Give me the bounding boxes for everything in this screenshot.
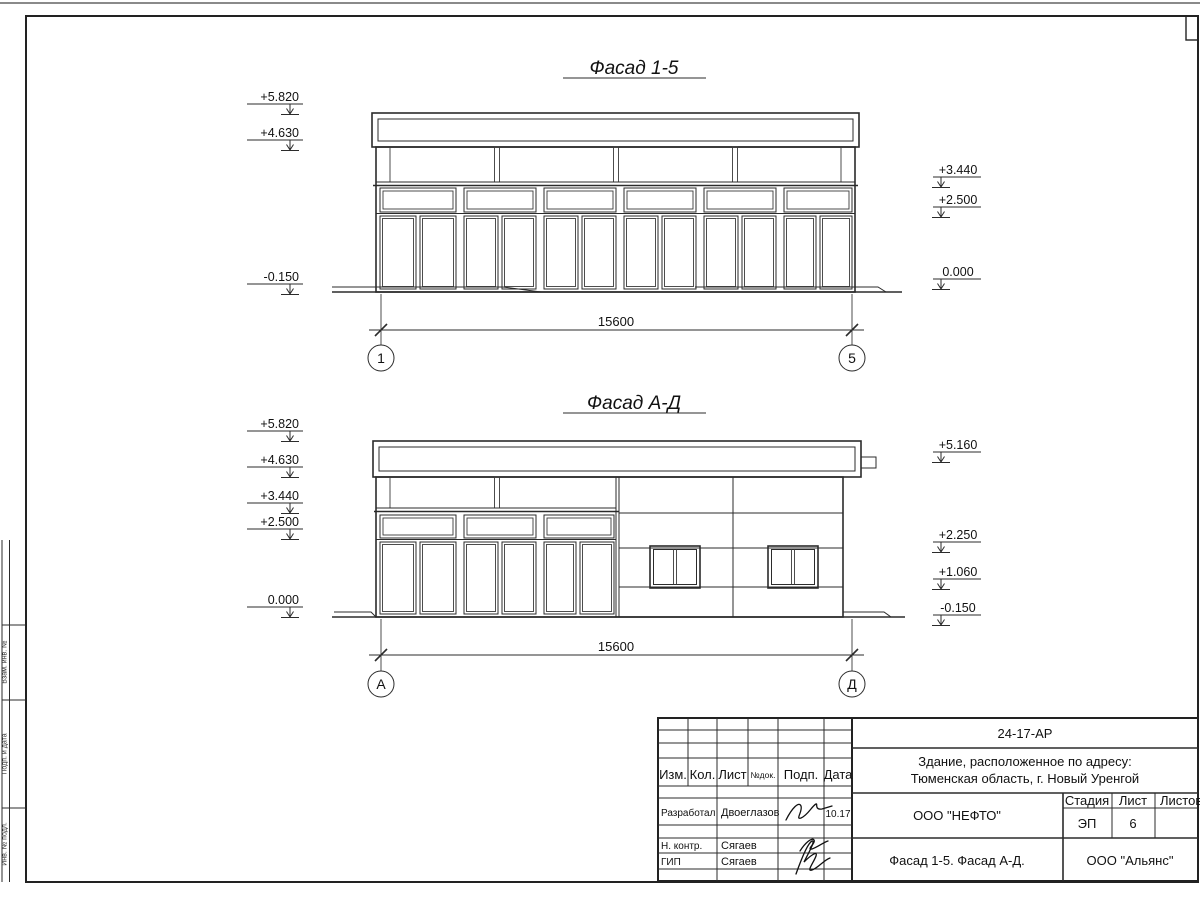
corner-doc-box [1186,16,1198,40]
elevation-mark: 0.000 [932,265,981,290]
svg-text:+2.500: +2.500 [260,515,299,529]
role-label: Разработал [661,807,716,819]
facade-1-5-drawing [332,113,902,292]
elevation-marks-right: +5.160 +2.250 +1.060 -0.150 [932,438,981,626]
transom-windows [376,188,855,214]
stage-value: ЭП [1078,816,1097,831]
sheet-number: 6 [1129,816,1136,831]
transom-windows [376,515,616,540]
dimension-value: 15600 [598,639,634,654]
elevation-mark: +2.250 [932,528,981,553]
margin-label: Подп. и дата [2,733,9,774]
client-name: ООО "НЕФТО" [913,808,1001,823]
axis-bubble-1: 1 [368,345,394,371]
elevation-mark: +3.440 [247,489,303,514]
svg-text:+3.440: +3.440 [939,163,978,177]
svg-text:+4.630: +4.630 [260,453,299,467]
design-org: ООО "Альянс" [1087,853,1174,868]
rev-header: Изм. [659,767,687,782]
rev-header: Кол. [690,767,716,782]
facade-1-5-title: Фасад 1-5 [563,58,706,79]
drawing-title: Фасад 1-5. Фасад А-Д. [889,853,1025,868]
dimension-facade-1-5: 15600 [369,294,864,345]
doc-number: 24-17-АР [998,726,1053,741]
svg-text:0.000: 0.000 [942,265,973,279]
elevation-mark: +4.630 [247,453,303,478]
role-label: ГИП [661,857,681,868]
roof-drain-tab [861,457,876,468]
rev-header: Дата [824,767,854,782]
dimension-value: 15600 [598,314,634,329]
elevation-mark: -0.150 [247,270,303,295]
role-date: 10.17 [825,809,850,820]
svg-text:Фасад 1-5: Фасад 1-5 [590,58,679,79]
elevation-mark: +5.160 [932,438,981,463]
elevation-mark: +1.060 [932,565,981,590]
elevation-marks-right: +3.440 +2.500 0.000 [932,163,981,290]
elevation-mark: +3.440 [932,163,981,188]
elevation-mark: 0.000 [247,593,303,618]
storefront-glazing [380,542,614,614]
drawing-sheet: Взам. инв. № Подп. и дата Инв. № подл. Ф… [0,0,1200,900]
margin-label: Взам. инв. № [2,640,9,683]
sheet-frame [0,3,1200,882]
svg-text:-0.150: -0.150 [940,601,975,615]
sheets-label: Листов [1160,793,1200,808]
rev-header: Подп. [784,767,819,782]
role-name: Сягаев [721,840,757,852]
sheet-label: Лист [1119,793,1147,808]
axis-bubble-a: А [368,671,394,697]
project-address-line1: Здание, расположенное по адресу: [918,754,1131,769]
svg-text:+5.820: +5.820 [260,90,299,104]
svg-text:Д: Д [847,676,857,692]
elevation-marks-left: +5.820 +4.630 +3.440 +2.500 0.000 [247,417,303,618]
margin-label: Инв. № подл. [2,822,9,866]
elevation-mark: +2.500 [247,515,303,540]
dimension-facade-a-d: 15600 [369,619,864,671]
title-block-right: 24-17-АР Здание, расположенное по адресу… [852,726,1200,881]
role-name: Сягаев [721,856,757,868]
elevation-mark: -0.150 [932,601,981,626]
window [768,546,818,588]
svg-text:+1.060: +1.060 [939,565,978,579]
role-label: Н. контр. [661,841,702,852]
project-address-line2: Тюменская область, г. Новый Уренгой [911,771,1139,786]
svg-text:+5.160: +5.160 [939,438,978,452]
facade-a-d-drawing [332,441,905,617]
elevation-mark: +5.820 [247,417,303,442]
revision-table: Изм. Кол. Лист №док. Подп. Дата Разработ… [658,718,853,881]
rev-header: Лист [718,767,746,782]
stage-label: Стадия [1065,793,1109,808]
facade-a-d-title: Фасад А-Д [563,393,706,414]
svg-text:5: 5 [848,350,856,366]
axis-bubble-5: 5 [839,345,865,371]
svg-text:-0.150: -0.150 [264,270,299,284]
svg-text:+5.820: +5.820 [260,417,299,431]
axis-bubble-d: Д [839,671,865,697]
elevation-mark: +4.630 [247,126,303,151]
role-name: Двоеглазов [721,807,780,819]
drawing-canvas: Взам. инв. № Подп. и дата Инв. № подл. Ф… [0,0,1200,900]
title-block: Изм. Кол. Лист №док. Подп. Дата Разработ… [658,718,1200,881]
rev-header: №док. [751,770,776,780]
svg-text:+4.630: +4.630 [260,126,299,140]
svg-text:Фасад А-Д: Фасад А-Д [587,393,681,414]
elevation-mark: +5.820 [247,90,303,115]
elevation-marks-left: +5.820 +4.630 -0.150 [247,90,303,295]
storefront-glazing [380,216,852,289]
svg-text:1: 1 [377,350,385,366]
window [650,546,700,588]
svg-text:А: А [376,676,386,692]
svg-text:0.000: 0.000 [268,593,299,607]
svg-text:+2.500: +2.500 [939,193,978,207]
svg-text:+2.250: +2.250 [939,528,978,542]
elevation-mark: +2.500 [932,193,981,218]
left-margin-strip: Взам. инв. № Подп. и дата Инв. № подл. [2,540,27,882]
svg-text:+3.440: +3.440 [260,489,299,503]
